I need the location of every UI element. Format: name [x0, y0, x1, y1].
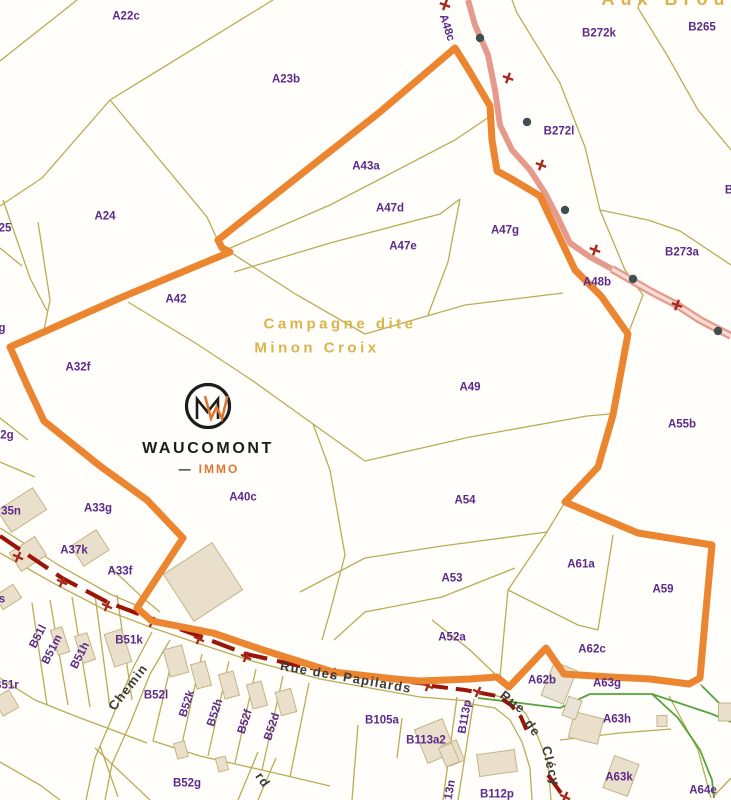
property-boundary: [10, 48, 712, 687]
map-geometry: [0, 0, 731, 800]
buildings: [0, 488, 731, 797]
road-secondary: [468, 0, 731, 336]
boundary-cross-markers: [11, 0, 684, 800]
cadastral-map: A22cA23bA2425A43aA47dA47eA47gA48cA48bB27…: [0, 0, 731, 800]
